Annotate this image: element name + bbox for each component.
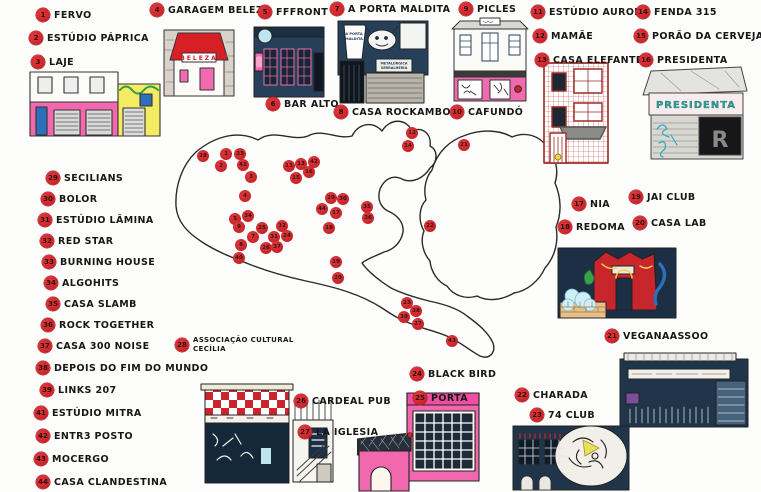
legend-item: 4 GARAGEM BELEZA xyxy=(150,3,271,17)
venue-label: JAI CLUB xyxy=(647,192,696,203)
legend-item: 39 LINKS 207 xyxy=(40,383,116,397)
venue-label: FERVO xyxy=(54,10,92,21)
legend-item: 14 FENDA 315 xyxy=(636,5,717,19)
venue-label: CASA 300 NOISE xyxy=(56,341,149,352)
venue-map-canvas: BELEZA xyxy=(0,0,761,492)
legend-item: 18 REDOMA xyxy=(558,220,625,234)
legend-item: 43 MOCERGO xyxy=(34,452,109,466)
venue-label: ESTÚDIO AURORA xyxy=(549,7,650,18)
venue-label: DEPOIS DO FIM DO MUNDO xyxy=(54,363,208,374)
venue-number-badge: 23 xyxy=(530,408,544,422)
venue-label: CASA ELEFANTE xyxy=(553,55,643,66)
venue-label: LA IGLESIA xyxy=(316,427,378,438)
venue-number-badge: 27 xyxy=(298,425,312,439)
legend-item: 24 BLACK BIRD xyxy=(410,367,496,381)
venue-number-badge: 30 xyxy=(41,192,55,206)
legend-item: 12 MAMÃE xyxy=(533,29,593,43)
legend-item: 23 74 CLUB xyxy=(530,408,595,422)
venue-label: CARDEAL PUB xyxy=(312,396,391,407)
venue-label: BLACK BIRD xyxy=(428,369,496,380)
venue-label: NIA xyxy=(590,199,610,210)
legend-item: 25 PORTA xyxy=(413,391,468,405)
legend-item: 38 DEPOIS DO FIM DO MUNDO xyxy=(36,361,208,375)
legend-item: 8 CASA ROCKAMBOLE xyxy=(334,105,464,119)
venue-label: 74 CLUB xyxy=(548,410,595,421)
venue-label: ENTR3 POSTO xyxy=(54,431,133,442)
legend-item: 11 ESTÚDIO AURORA xyxy=(531,5,650,19)
venue-number-badge: 44 xyxy=(36,475,50,489)
venue-number-badge: 18 xyxy=(558,220,572,234)
venue-number-badge: 16 xyxy=(639,53,653,67)
venue-number-badge: 3 xyxy=(31,55,45,69)
venue-number-badge: 43 xyxy=(34,452,48,466)
venue-number-badge: 11 xyxy=(531,5,545,19)
venue-label: PICLES xyxy=(477,4,516,15)
venue-number-badge: 13 xyxy=(535,53,549,67)
venue-number-badge: 10 xyxy=(450,105,464,119)
legend-item: 41 ESTÚDIO MITRA xyxy=(34,406,142,420)
venue-label: LAJE xyxy=(49,57,74,68)
venue-label: A PORTA MALDITA xyxy=(348,4,450,15)
venue-label: ESTÚDIO LÂMINA xyxy=(56,215,154,226)
legend-item: 34 ALGOHITS xyxy=(44,276,119,290)
venue-label: ESTÚDIO MITRA xyxy=(52,408,142,419)
venue-number-badge: 34 xyxy=(44,276,58,290)
legend-item: 26 CARDEAL PUB xyxy=(294,394,391,408)
venue-label: SECILIANS xyxy=(64,173,123,184)
venue-number-badge: 35 xyxy=(46,297,60,311)
legend-item: 32 RED STAR xyxy=(40,234,113,248)
venue-label: ALGOHITS xyxy=(62,278,119,289)
venue-number-badge: 20 xyxy=(633,216,647,230)
venue-label: LINKS 207 xyxy=(58,385,116,396)
venue-number-badge: 29 xyxy=(46,171,60,185)
venue-label: MOCERGO xyxy=(52,454,109,465)
legend-item: 10 CAFUNDÓ xyxy=(450,105,523,119)
venue-label: PRESIDENTA xyxy=(657,55,728,66)
venue-number-badge: 22 xyxy=(515,388,529,402)
venue-number-badge: 31 xyxy=(38,213,52,227)
venue-label: PORÃO DA CERVEJA xyxy=(652,31,761,42)
venue-label: CASA CLANDESTINA xyxy=(54,477,167,488)
venue-number-badge: 19 xyxy=(629,190,643,204)
venue-label: CASA SLAMB xyxy=(64,299,137,310)
venue-number-badge: 1 xyxy=(36,8,50,22)
venue-number-badge: 36 xyxy=(41,318,55,332)
legend-item: 29 SECILIANS xyxy=(46,171,123,185)
legend-item: 30 BOLOR xyxy=(41,192,97,206)
venue-label: GARAGEM BELEZA xyxy=(168,5,271,16)
venue-number-badge: 25 xyxy=(413,391,427,405)
venue-label: VEGANAASSOO xyxy=(623,331,708,342)
legend-item: 7 A PORTA MALDITA xyxy=(330,2,450,16)
venue-label: ESTÚDIO PÁPRICA xyxy=(47,33,149,44)
venue-number-badge: 42 xyxy=(36,429,50,443)
venue-number-badge: 21 xyxy=(605,329,619,343)
legend-item: 28 ASSOCIAÇÃO CULTURAL CECÍLIA xyxy=(175,336,294,354)
legend-item: 33 BURNING HOUSE xyxy=(42,255,155,269)
legend-item: 44 CASA CLANDESTINA xyxy=(36,475,167,489)
venue-number-badge: 6 xyxy=(266,97,280,111)
venue-label: PORTA xyxy=(431,393,468,404)
venue-number-badge: 2 xyxy=(29,31,43,45)
legend-item: 35 CASA SLAMB xyxy=(46,297,137,311)
venue-number-badge: 4 xyxy=(150,3,164,17)
venue-label: CASA LAB xyxy=(651,218,707,229)
venue-number-badge: 37 xyxy=(38,339,52,353)
venue-label: MAMÃE xyxy=(551,31,593,42)
venue-label: CAFUNDÓ xyxy=(468,107,523,118)
legend-item: 42 ENTR3 POSTO xyxy=(36,429,133,443)
venue-number-badge: 26 xyxy=(294,394,308,408)
legend-item: 20 CASA LAB xyxy=(633,216,707,230)
venue-number-badge: 14 xyxy=(636,5,650,19)
legend-item: 27 LA IGLESIA xyxy=(298,425,378,439)
legend-item: 1 FERVO xyxy=(36,8,92,22)
legend-item: 36 ROCK TOGETHER xyxy=(41,318,154,332)
legend-item: 13 CASA ELEFANTE xyxy=(535,53,643,67)
venue-label: CHARADA xyxy=(533,390,588,401)
venue-number-badge: 28 xyxy=(175,338,189,352)
venue-label: RED STAR xyxy=(58,236,113,247)
legend-item: 37 CASA 300 NOISE xyxy=(38,339,149,353)
legend-item: 17 NIA xyxy=(572,197,610,211)
legend-item: 31 ESTÚDIO LÂMINA xyxy=(38,213,154,227)
legend-item: 22 CHARADA xyxy=(515,388,588,402)
venue-label: BAR ALTO xyxy=(284,99,339,110)
venue-number-badge: 9 xyxy=(459,2,473,16)
venue-label: BOLOR xyxy=(59,194,97,205)
venue-label: FFFRONT xyxy=(276,7,328,18)
venue-number-badge: 12 xyxy=(533,29,547,43)
venue-number-badge: 17 xyxy=(572,197,586,211)
venue-label: ROCK TOGETHER xyxy=(59,320,154,331)
venue-number-badge: 7 xyxy=(330,2,344,16)
venue-label: BURNING HOUSE xyxy=(60,257,155,268)
legend-item: 6 BAR ALTO xyxy=(266,97,339,111)
legend-item: 15 PORÃO DA CERVEJA xyxy=(634,29,761,43)
legend-item: 21 VEGANAASSOO xyxy=(605,329,708,343)
venue-number-badge: 41 xyxy=(34,406,48,420)
legend-item: 3 LAJE xyxy=(31,55,74,69)
legend-item: 16 PRESIDENTA xyxy=(639,53,728,67)
legend-item: 9 PICLES xyxy=(459,2,516,16)
venue-number-badge: 24 xyxy=(410,367,424,381)
venue-legend: 1 FERVO 2 ESTÚDIO PÁPRICA 3 LAJE 4 GARAG… xyxy=(0,0,761,492)
venue-number-badge: 39 xyxy=(40,383,54,397)
venue-number-badge: 32 xyxy=(40,234,54,248)
venue-label: REDOMA xyxy=(576,222,625,233)
venue-label: ASSOCIAÇÃO CULTURAL CECÍLIA xyxy=(193,336,294,354)
venue-label: FENDA 315 xyxy=(654,7,717,18)
legend-item: 5 FFFRONT xyxy=(258,5,328,19)
legend-item: 19 JAI CLUB xyxy=(629,190,696,204)
venue-number-badge: 5 xyxy=(258,5,272,19)
venue-label: CASA ROCKAMBOLE xyxy=(352,107,464,118)
legend-item: 2 ESTÚDIO PÁPRICA xyxy=(29,31,149,45)
venue-number-badge: 15 xyxy=(634,29,648,43)
venue-number-badge: 38 xyxy=(36,361,50,375)
venue-number-badge: 33 xyxy=(42,255,56,269)
venue-number-badge: 8 xyxy=(334,105,348,119)
